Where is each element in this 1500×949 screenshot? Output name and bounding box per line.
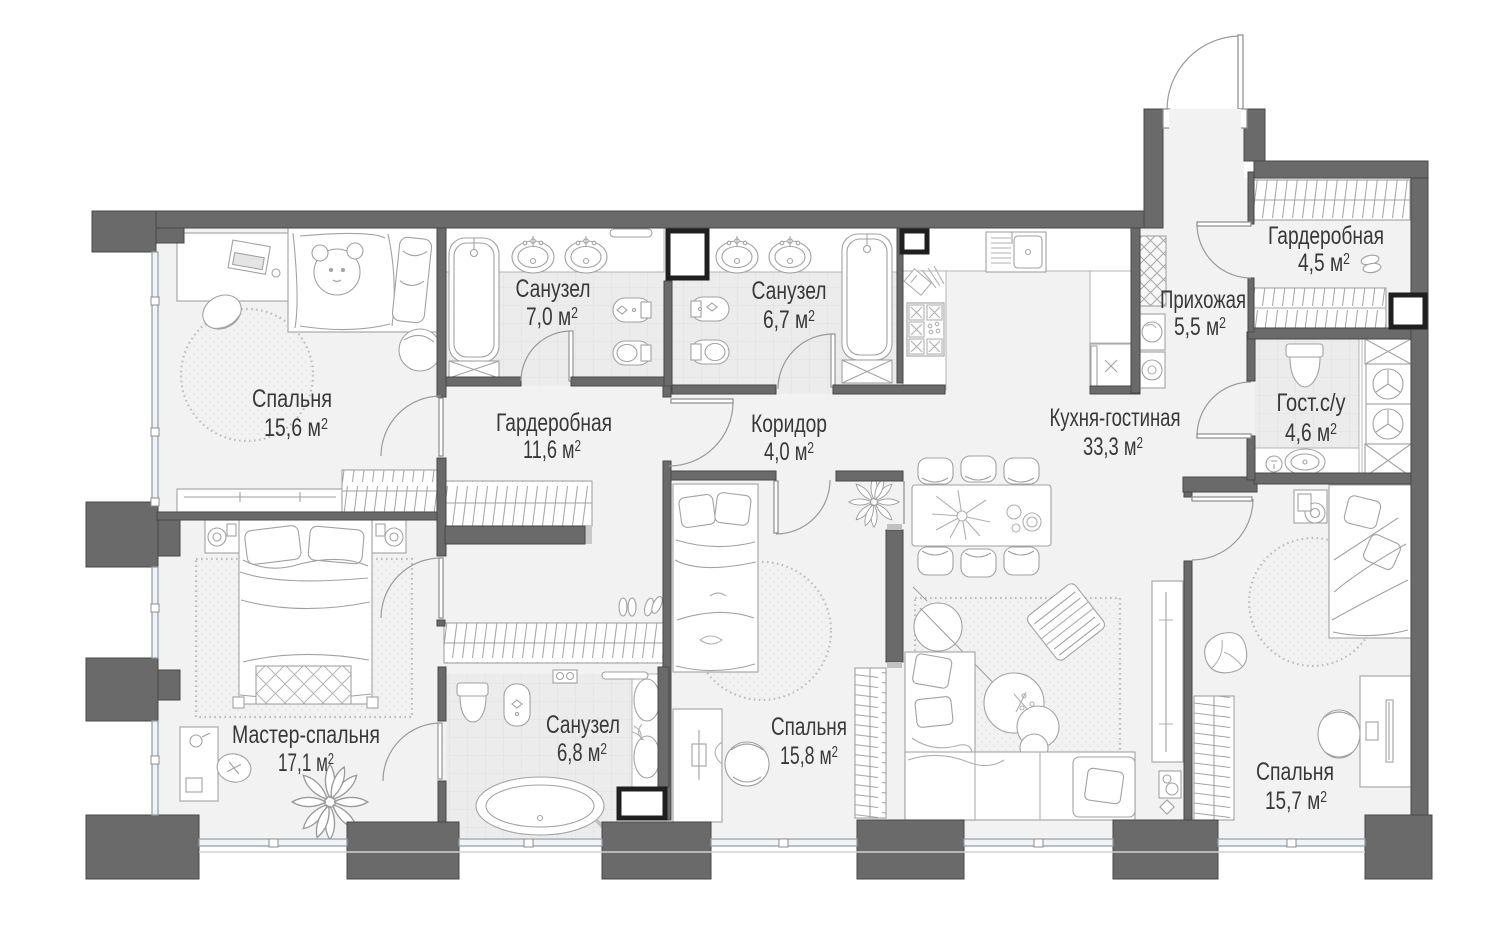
svg-text:Кухня-гостиная: Кухня-гостиная	[1050, 404, 1181, 432]
svg-text:15,6 м2: 15,6 м2	[264, 414, 328, 442]
svg-text:Спальня: Спальня	[252, 385, 332, 413]
svg-text:6,7 м2: 6,7 м2	[763, 306, 815, 334]
svg-text:Прихожая: Прихожая	[1160, 286, 1246, 314]
svg-text:Гардеробная: Гардеробная	[1268, 222, 1384, 250]
svg-text:15,8 м2: 15,8 м2	[780, 742, 838, 770]
svg-text:Коридор: Коридор	[751, 410, 827, 438]
svg-text:5,5 м2: 5,5 м2	[1174, 313, 1226, 341]
svg-text:4,0 м2: 4,0 м2	[764, 438, 814, 466]
svg-text:Спальня: Спальня	[1256, 758, 1334, 786]
svg-text:Мастер-спальня: Мастер-спальня	[232, 721, 380, 749]
svg-text:Санузел: Санузел	[752, 277, 827, 305]
svg-text:15,7 м2: 15,7 м2	[1265, 787, 1327, 815]
svg-text:4,6 м2: 4,6 м2	[1285, 419, 1337, 447]
svg-text:Спальня: Спальня	[771, 713, 847, 741]
svg-text:33,3 м2: 33,3 м2	[1083, 433, 1143, 461]
svg-text:Гост.с/у: Гост.с/у	[1277, 389, 1346, 417]
svg-text:Гардеробная: Гардеробная	[496, 409, 612, 437]
svg-text:7,0 м2: 7,0 м2	[526, 303, 578, 331]
svg-text:4,5 м2: 4,5 м2	[1298, 249, 1350, 277]
svg-text:11,6 м2: 11,6 м2	[523, 436, 581, 464]
svg-text:6,8 м2: 6,8 м2	[557, 739, 607, 767]
svg-text:Санузел: Санузел	[516, 275, 591, 303]
svg-text:Санузел: Санузел	[546, 711, 620, 739]
svg-text:17,1 м2: 17,1 м2	[278, 749, 334, 777]
